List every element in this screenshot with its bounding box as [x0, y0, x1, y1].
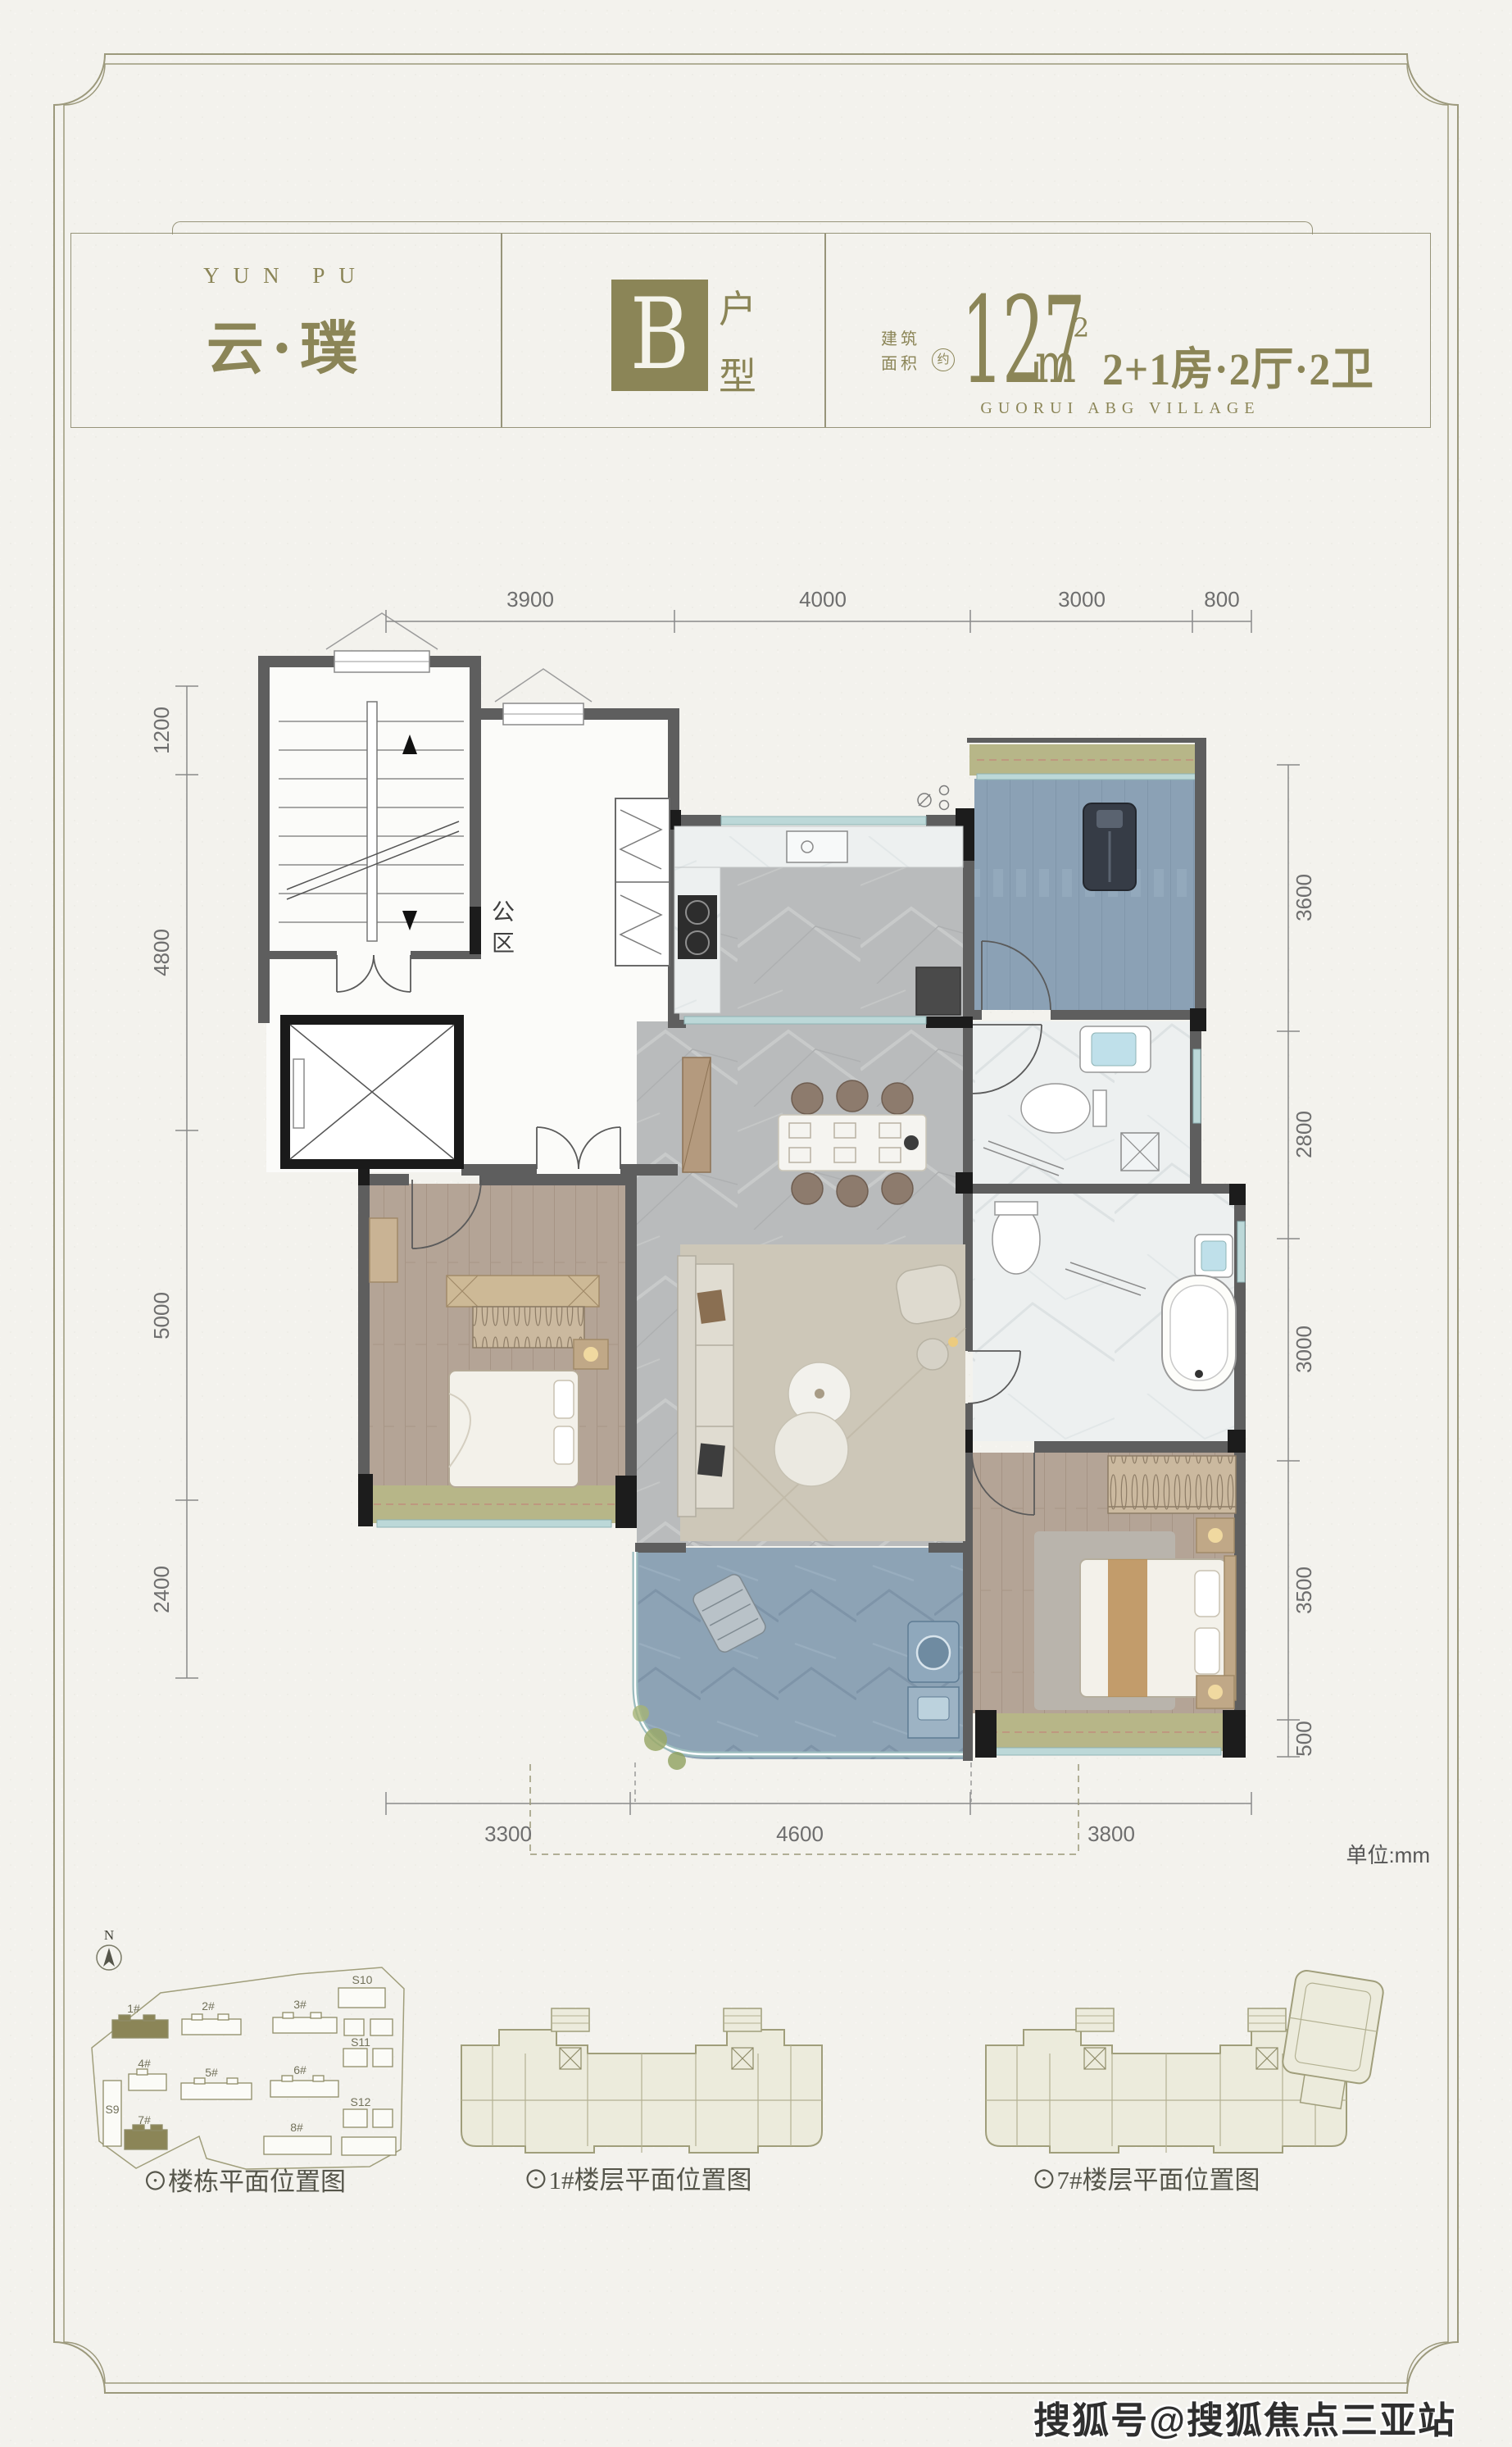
unit-word-2: 型 — [719, 347, 768, 401]
kitchen-sink — [787, 831, 847, 862]
bldg-label-2: 2# — [202, 1999, 215, 2013]
bldg-label-s10: S10 — [352, 1973, 373, 1986]
site-plan-overview: N 1# 2# — [92, 1927, 404, 2169]
dim-top-3: 3000 — [1058, 587, 1106, 612]
floor-plan: 公 区 — [258, 613, 1246, 1770]
area-unit: m — [1035, 337, 1076, 391]
dim-left-2: 4800 — [149, 929, 174, 976]
dim-right-4: 3500 — [1292, 1567, 1316, 1614]
band-divider-2 — [824, 234, 826, 427]
living-room — [678, 1244, 965, 1541]
caption-site-plan: ⊙楼栋平面位置图 — [143, 2167, 346, 2196]
header-band: YUN PU 云·璞 B 户 型 建筑 面积 约 127 m 2 2+1房·2厅… — [70, 233, 1431, 428]
dim-bottom-1: 3300 — [484, 1822, 532, 1846]
band-divider-1 — [501, 234, 502, 427]
dim-right-3: 3000 — [1292, 1326, 1316, 1373]
stove — [678, 895, 717, 959]
unit-note: 单位:mm — [1346, 1843, 1430, 1867]
wardrobe-1 — [473, 1307, 584, 1348]
bldg-label-s11: S11 — [351, 2035, 370, 2049]
floorplate-7 — [986, 1969, 1385, 2153]
wardrobe-master — [1108, 1456, 1236, 1513]
bldg-label-7: 7# — [138, 2113, 151, 2126]
unit-word-1: 户 — [719, 280, 768, 334]
coffee-table-2 — [774, 1412, 848, 1486]
dim-top-2: 4000 — [799, 587, 847, 612]
bldg-label-s9: S9 — [105, 2103, 119, 2116]
area-label-2: 面积 — [881, 350, 920, 374]
brand-name-en: YUN PU — [71, 263, 501, 289]
bldg-label-3: 3# — [293, 1998, 306, 2011]
fridge — [916, 967, 960, 1015]
brand-name-cn: 云·璞 — [71, 302, 501, 385]
toilet-1 — [1021, 1084, 1090, 1133]
dim-top-4: 800 — [1204, 587, 1239, 612]
watermark: 搜狐号@搜狐焦点三亚站 — [1033, 2390, 1456, 2444]
project-name-en: GUORUI ABG VILLAGE — [956, 399, 1284, 418]
public-area-label-1: 公 — [492, 900, 515, 926]
unit-type-badge: B — [611, 280, 708, 391]
caption-plate-7: ⊙7#楼层平面位置图 — [1032, 2166, 1260, 2195]
bldg-label-1: 1# — [127, 2002, 140, 2015]
caption-plate-1: ⊙1#楼层平面位置图 — [524, 2166, 752, 2195]
dim-right-1: 3600 — [1292, 874, 1316, 921]
bldg-label-5: 5# — [205, 2066, 218, 2079]
dim-bottom-3: 3800 — [1087, 1822, 1135, 1846]
cabinet — [447, 1276, 599, 1307]
area-label-1: 建筑 — [881, 325, 920, 349]
dim-bottom-2: 4600 — [776, 1822, 824, 1846]
unit-letter: B — [630, 286, 689, 384]
bldg-label-4: 4# — [138, 2057, 151, 2070]
dim-left-4: 2400 — [149, 1566, 174, 1613]
elevator — [285, 1020, 459, 1164]
desk — [370, 1218, 397, 1282]
area-unit-sup: 2 — [1073, 312, 1089, 343]
hall-closets — [615, 798, 670, 966]
accent-chair — [894, 1262, 963, 1326]
floorplate-1 — [461, 2008, 822, 2153]
dim-left-1: 1200 — [149, 707, 174, 754]
layout-summary: 2+1房·2厅·2卫 — [1102, 332, 1374, 398]
dim-left-3: 5000 — [149, 1292, 174, 1339]
compass-label: N — [104, 1927, 114, 1943]
bldg-label-8: 8# — [290, 2121, 303, 2134]
dim-right-2: 2800 — [1292, 1111, 1316, 1158]
bldg-label-s12: S12 — [351, 2095, 371, 2108]
area-approx-seal: 约 — [932, 348, 955, 371]
study-room — [1083, 803, 1136, 890]
dim-right-5: 500 — [1292, 1721, 1316, 1756]
bldg-label-6: 6# — [293, 2063, 306, 2076]
floorplan-poster: 公 区 — [0, 0, 1512, 2447]
public-area-label-2: 区 — [492, 931, 515, 957]
dim-top-1: 3900 — [506, 587, 554, 612]
